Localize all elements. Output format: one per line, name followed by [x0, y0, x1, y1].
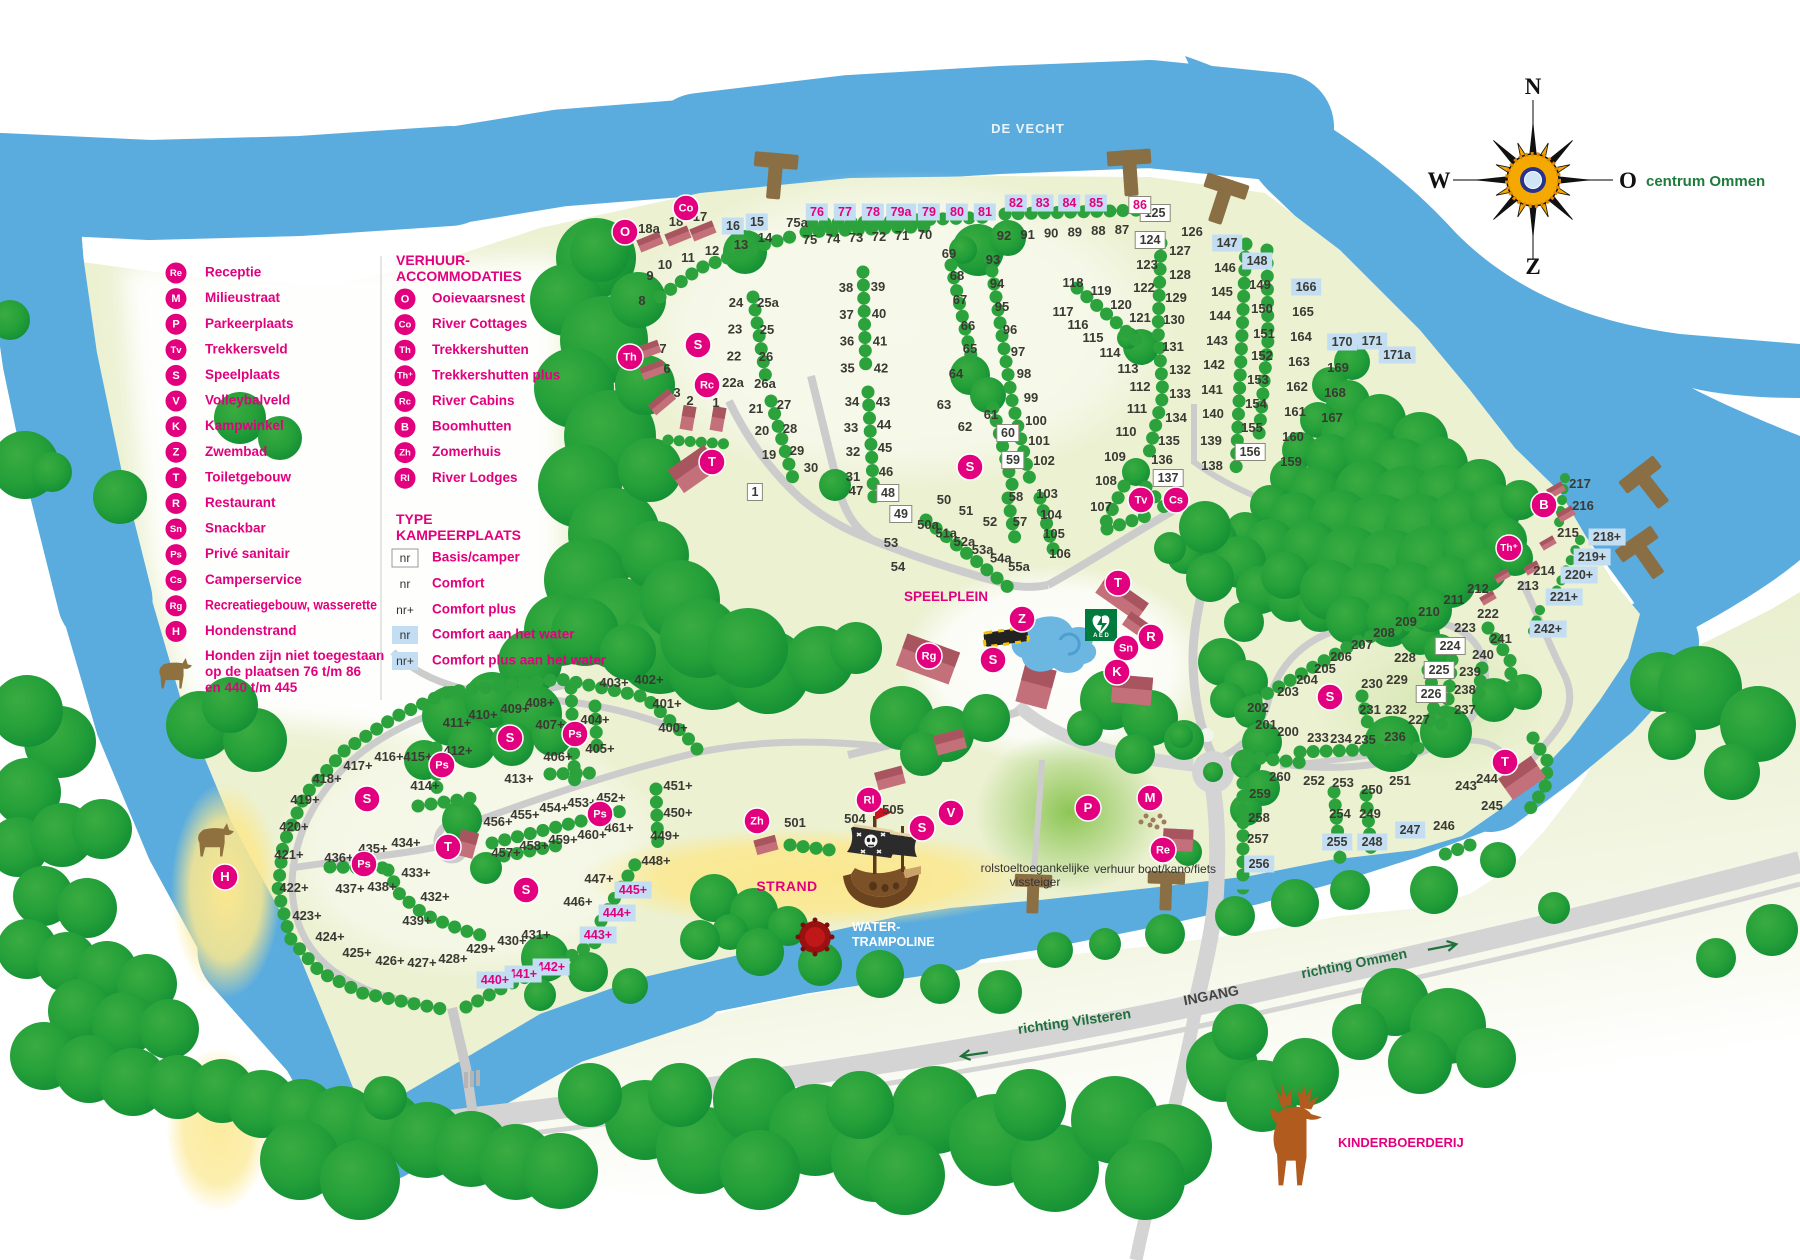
svg-text:237: 237 — [1454, 702, 1476, 717]
svg-text:434+: 434+ — [391, 835, 421, 850]
svg-text:106: 106 — [1049, 546, 1071, 561]
svg-text:247: 247 — [1400, 823, 1421, 837]
svg-text:249: 249 — [1359, 806, 1381, 821]
svg-text:en 440 t/m 445: en 440 t/m 445 — [205, 680, 298, 695]
svg-text:Snackbar: Snackbar — [205, 521, 267, 536]
svg-text:H: H — [220, 869, 229, 884]
svg-text:22a: 22a — [722, 375, 744, 390]
svg-text:Rc: Rc — [399, 396, 411, 407]
svg-text:79a: 79a — [891, 205, 913, 219]
svg-text:238: 238 — [1454, 682, 1476, 697]
svg-text:23: 23 — [728, 322, 742, 337]
svg-text:200: 200 — [1277, 724, 1299, 739]
svg-text:254: 254 — [1329, 806, 1351, 821]
svg-text:440+: 440+ — [481, 973, 509, 987]
svg-text:Z: Z — [1525, 254, 1540, 279]
svg-text:121: 121 — [1129, 310, 1151, 325]
svg-text:241: 241 — [1490, 631, 1512, 646]
svg-text:421+: 421+ — [274, 847, 304, 862]
svg-text:218+: 218+ — [1593, 530, 1621, 544]
svg-text:228: 228 — [1394, 650, 1416, 665]
svg-text:Parkeerplaats: Parkeerplaats — [205, 316, 294, 331]
svg-text:Restaurant: Restaurant — [205, 495, 276, 510]
svg-text:235: 235 — [1354, 732, 1376, 747]
svg-text:59: 59 — [1006, 453, 1020, 467]
svg-text:118: 118 — [1063, 275, 1084, 290]
svg-text:12: 12 — [705, 243, 719, 258]
svg-text:154: 154 — [1245, 396, 1267, 411]
svg-text:10: 10 — [658, 257, 672, 272]
svg-text:420+: 420+ — [279, 819, 309, 834]
svg-text:op de plaatsen 76 t/m 86: op de plaatsen 76 t/m 86 — [205, 664, 362, 679]
svg-text:252: 252 — [1303, 773, 1325, 788]
svg-text:S: S — [1326, 689, 1335, 704]
svg-text:Tv: Tv — [1135, 494, 1149, 506]
svg-text:M: M — [171, 293, 180, 305]
svg-text:Th: Th — [623, 351, 637, 363]
svg-text:82: 82 — [1009, 196, 1023, 210]
svg-text:68: 68 — [950, 268, 964, 283]
svg-text:216: 216 — [1572, 498, 1594, 513]
svg-text:403+: 403+ — [599, 675, 629, 690]
svg-text:58: 58 — [1009, 489, 1023, 504]
svg-text:Speelplaats: Speelplaats — [205, 367, 280, 382]
svg-text:126: 126 — [1181, 224, 1203, 239]
svg-text:18a: 18a — [638, 221, 660, 236]
svg-text:98: 98 — [1017, 366, 1031, 381]
svg-text:O: O — [401, 293, 410, 305]
svg-text:449+: 449+ — [650, 828, 680, 843]
svg-text:K: K — [172, 421, 180, 433]
svg-text:220+: 220+ — [1565, 568, 1593, 582]
svg-text:Toiletgebouw: Toiletgebouw — [205, 469, 291, 484]
svg-text:202: 202 — [1247, 700, 1269, 715]
svg-text:41: 41 — [873, 333, 887, 348]
svg-text:65: 65 — [963, 341, 977, 356]
svg-text:224: 224 — [1440, 639, 1461, 653]
svg-text:Volleybalveld: Volleybalveld — [205, 393, 290, 408]
svg-text:229: 229 — [1386, 672, 1408, 687]
svg-text:171a: 171a — [1383, 348, 1412, 362]
svg-text:Tv: Tv — [170, 345, 182, 356]
svg-text:Hondenstrand: Hondenstrand — [205, 623, 297, 638]
svg-text:Zh: Zh — [399, 448, 411, 459]
svg-text:STRAND: STRAND — [756, 878, 817, 894]
svg-text:209: 209 — [1395, 614, 1417, 629]
svg-text:91: 91 — [1020, 227, 1034, 242]
svg-text:84: 84 — [1062, 196, 1076, 210]
svg-text:219+: 219+ — [1578, 550, 1606, 564]
svg-text:122: 122 — [1133, 280, 1155, 295]
svg-text:64: 64 — [949, 366, 964, 381]
svg-text:215: 215 — [1557, 525, 1579, 540]
svg-text:505: 505 — [882, 802, 904, 817]
svg-text:Boomhutten: Boomhutten — [432, 419, 511, 434]
svg-text:25: 25 — [760, 322, 774, 337]
svg-text:89: 89 — [1068, 224, 1082, 239]
svg-text:109: 109 — [1104, 449, 1126, 464]
svg-text:27: 27 — [777, 397, 791, 412]
svg-text:244: 244 — [1476, 771, 1498, 786]
svg-text:425+: 425+ — [342, 945, 372, 960]
svg-text:140: 140 — [1202, 406, 1224, 421]
svg-text:458+: 458+ — [519, 838, 549, 853]
svg-text:13: 13 — [734, 237, 748, 252]
svg-text:136: 136 — [1151, 452, 1173, 467]
svg-text:15: 15 — [750, 215, 764, 229]
svg-text:129: 129 — [1165, 290, 1187, 305]
svg-text:161: 161 — [1284, 404, 1306, 419]
svg-text:61: 61 — [984, 407, 998, 422]
svg-text:246: 246 — [1433, 818, 1455, 833]
svg-text:115: 115 — [1083, 330, 1104, 345]
svg-text:Re: Re — [170, 268, 182, 279]
svg-text:416+: 416+ — [374, 749, 404, 764]
svg-text:168: 168 — [1324, 385, 1346, 400]
svg-text:152: 152 — [1251, 348, 1273, 363]
svg-text:166: 166 — [1296, 280, 1317, 294]
svg-text:Ps: Ps — [435, 759, 448, 771]
svg-text:400+: 400+ — [658, 720, 688, 735]
svg-text:150: 150 — [1251, 301, 1273, 316]
svg-text:101: 101 — [1028, 433, 1050, 448]
svg-text:159: 159 — [1280, 454, 1302, 469]
svg-text:47: 47 — [849, 483, 863, 498]
svg-text:81: 81 — [978, 205, 992, 219]
svg-text:S: S — [506, 730, 515, 745]
svg-text:Re: Re — [1156, 844, 1170, 856]
svg-text:97: 97 — [1011, 344, 1025, 359]
svg-text:Receptie: Receptie — [205, 265, 262, 280]
svg-text:432+: 432+ — [420, 889, 450, 904]
svg-text:134: 134 — [1165, 410, 1187, 425]
svg-text:102: 102 — [1033, 453, 1055, 468]
svg-text:428+: 428+ — [438, 951, 468, 966]
svg-text:Honden zijn niet toegestaan: Honden zijn niet toegestaan — [205, 648, 384, 663]
svg-text:100: 100 — [1025, 413, 1047, 428]
svg-text:3: 3 — [673, 385, 680, 400]
svg-text:19: 19 — [762, 447, 776, 462]
svg-text:K: K — [1112, 664, 1122, 679]
svg-text:Co: Co — [679, 202, 694, 214]
svg-text:201: 201 — [1255, 717, 1277, 732]
svg-text:431+: 431+ — [521, 927, 551, 942]
svg-text:203: 203 — [1277, 684, 1299, 699]
svg-text:34: 34 — [845, 394, 860, 409]
svg-text:231: 231 — [1359, 702, 1381, 717]
svg-text:90: 90 — [1044, 226, 1058, 241]
svg-text:232: 232 — [1385, 702, 1407, 717]
svg-text:230: 230 — [1361, 676, 1383, 691]
svg-text:44: 44 — [877, 417, 892, 432]
svg-text:S: S — [989, 652, 998, 667]
svg-text:165: 165 — [1292, 304, 1314, 319]
svg-text:26: 26 — [759, 349, 773, 364]
svg-text:204: 204 — [1296, 672, 1318, 687]
svg-text:448+: 448+ — [641, 853, 671, 868]
svg-text:88: 88 — [1091, 223, 1105, 238]
svg-text:Comfort aan het water: Comfort aan het water — [432, 627, 575, 642]
svg-text:nr+: nr+ — [396, 654, 414, 668]
svg-text:79: 79 — [922, 205, 936, 219]
svg-text:Th: Th — [399, 345, 411, 356]
svg-text:114: 114 — [1100, 345, 1122, 360]
svg-text:VERHUUR-: VERHUUR- — [396, 252, 470, 268]
svg-text:130: 130 — [1163, 312, 1185, 327]
svg-text:444+: 444+ — [603, 906, 631, 920]
svg-text:1: 1 — [752, 485, 759, 499]
svg-text:226: 226 — [1421, 687, 1442, 701]
svg-text:46: 46 — [879, 464, 893, 479]
svg-text:85: 85 — [1089, 196, 1103, 210]
svg-text:Ps: Ps — [593, 808, 606, 820]
svg-text:451+: 451+ — [663, 778, 693, 793]
svg-text:P: P — [1084, 800, 1093, 815]
svg-text:245: 245 — [1481, 798, 1503, 813]
svg-text:77: 77 — [838, 205, 852, 219]
svg-text:R: R — [172, 498, 180, 510]
svg-text:240: 240 — [1472, 647, 1494, 662]
svg-text:67: 67 — [953, 292, 967, 307]
svg-text:54: 54 — [891, 559, 906, 574]
svg-text:N: N — [1525, 74, 1542, 99]
svg-text:Sn: Sn — [1119, 642, 1133, 654]
svg-text:Z: Z — [173, 447, 180, 459]
svg-text:447+: 447+ — [584, 871, 614, 886]
svg-text:251: 251 — [1389, 773, 1411, 788]
svg-text:73: 73 — [849, 230, 863, 245]
svg-text:33: 33 — [844, 420, 858, 435]
svg-text:KAMPEERPLAATS: KAMPEERPLAATS — [396, 527, 521, 543]
svg-text:ACCOMMODATIES: ACCOMMODATIES — [396, 268, 522, 284]
svg-text:Recreatiegebouw, wasserette: Recreatiegebouw, wasserette — [205, 597, 377, 612]
svg-text:92: 92 — [997, 228, 1011, 243]
svg-text:76: 76 — [810, 205, 824, 219]
svg-text:93: 93 — [986, 252, 1000, 267]
svg-text:30: 30 — [804, 460, 818, 475]
svg-text:95: 95 — [995, 299, 1009, 314]
svg-text:Rl: Rl — [864, 794, 875, 806]
svg-text:75: 75 — [803, 232, 817, 247]
svg-text:Comfort plus: Comfort plus — [432, 602, 516, 617]
svg-text:rolstoeltoegankelijke: rolstoeltoegankelijke — [981, 861, 1090, 875]
svg-text:50: 50 — [937, 492, 951, 507]
svg-text:7: 7 — [659, 341, 666, 356]
svg-text:72: 72 — [872, 229, 886, 244]
svg-text:407+: 407+ — [535, 717, 565, 732]
svg-text:426+: 426+ — [375, 953, 405, 968]
svg-text:52: 52 — [983, 514, 997, 529]
svg-text:147: 147 — [1217, 236, 1238, 250]
svg-text:T: T — [444, 839, 452, 854]
svg-text:Zh: Zh — [750, 815, 764, 827]
svg-text:O: O — [620, 224, 630, 239]
svg-text:74: 74 — [826, 231, 841, 246]
svg-text:504: 504 — [844, 811, 866, 826]
svg-text:139: 139 — [1200, 433, 1222, 448]
svg-text:155: 155 — [1241, 420, 1263, 435]
svg-text:O: O — [1619, 168, 1637, 193]
svg-text:253: 253 — [1332, 775, 1354, 790]
svg-text:vissteiger: vissteiger — [1010, 875, 1061, 889]
svg-text:P: P — [172, 319, 179, 331]
svg-text:Basis/camper: Basis/camper — [432, 550, 521, 565]
svg-text:433+: 433+ — [401, 865, 431, 880]
svg-text:257: 257 — [1247, 831, 1269, 846]
svg-text:258: 258 — [1248, 810, 1270, 825]
svg-text:Milieustraat: Milieustraat — [205, 290, 281, 305]
svg-text:1: 1 — [712, 395, 719, 410]
svg-text:211: 211 — [1444, 592, 1465, 607]
svg-text:419+: 419+ — [290, 792, 320, 807]
svg-text:48: 48 — [881, 486, 895, 500]
svg-text:22: 22 — [727, 348, 741, 363]
svg-text:Trekkersveld: Trekkersveld — [205, 341, 288, 356]
svg-text:B: B — [401, 421, 409, 433]
svg-text:Rc: Rc — [700, 379, 714, 391]
svg-text:V: V — [172, 395, 180, 407]
svg-text:63: 63 — [937, 397, 951, 412]
svg-text:River Cabins: River Cabins — [432, 393, 515, 408]
svg-text:16: 16 — [726, 219, 740, 233]
svg-text:62: 62 — [958, 419, 972, 434]
svg-text:S: S — [966, 459, 975, 474]
svg-text:Comfort: Comfort — [432, 576, 485, 591]
svg-text:408+: 408+ — [525, 695, 555, 710]
svg-text:141: 141 — [1201, 382, 1223, 397]
svg-text:T: T — [1501, 754, 1509, 769]
svg-text:123: 123 — [1136, 257, 1158, 272]
svg-text:T: T — [708, 454, 716, 469]
svg-text:Trekkershutten plus: Trekkershutten plus — [432, 367, 560, 382]
svg-text:239: 239 — [1459, 664, 1481, 679]
svg-text:427+: 427+ — [407, 955, 437, 970]
svg-text:28: 28 — [783, 421, 797, 436]
svg-text:Ps: Ps — [568, 728, 581, 740]
svg-text:9: 9 — [646, 268, 653, 283]
svg-text:153: 153 — [1247, 372, 1269, 387]
svg-text:417+: 417+ — [343, 758, 373, 773]
svg-text:170: 170 — [1332, 335, 1353, 349]
svg-text:T: T — [1114, 575, 1122, 590]
svg-text:259: 259 — [1249, 786, 1271, 801]
svg-text:H: H — [172, 626, 180, 638]
svg-text:225: 225 — [1429, 663, 1450, 677]
svg-text:57: 57 — [1013, 514, 1027, 529]
svg-text:145: 145 — [1211, 284, 1233, 299]
svg-text:111: 111 — [1127, 401, 1147, 416]
svg-text:11: 11 — [681, 250, 695, 265]
svg-text:146: 146 — [1214, 260, 1236, 275]
svg-text:nr: nr — [400, 628, 411, 642]
svg-text:32: 32 — [846, 444, 860, 459]
svg-text:250: 250 — [1361, 782, 1383, 797]
svg-text:25a: 25a — [757, 295, 779, 310]
svg-text:454+: 454+ — [539, 800, 569, 815]
svg-text:36: 36 — [840, 334, 854, 349]
svg-text:26a: 26a — [754, 376, 776, 391]
svg-text:Ps: Ps — [357, 858, 370, 870]
svg-text:128: 128 — [1169, 267, 1191, 282]
svg-text:234: 234 — [1330, 731, 1352, 746]
svg-text:S: S — [172, 370, 179, 382]
svg-text:86: 86 — [1133, 198, 1147, 212]
svg-text:413+: 413+ — [504, 771, 534, 786]
svg-text:71: 71 — [895, 228, 909, 243]
svg-text:verhuur boot/kano/fiets: verhuur boot/kano/fiets — [1094, 862, 1216, 876]
svg-text:69: 69 — [942, 246, 956, 261]
svg-text:222: 222 — [1477, 606, 1499, 621]
svg-text:Rl: Rl — [400, 473, 410, 484]
svg-text:94: 94 — [990, 276, 1005, 291]
svg-text:6: 6 — [663, 361, 670, 376]
svg-text:255: 255 — [1327, 835, 1348, 849]
svg-text:River Lodges: River Lodges — [432, 470, 518, 485]
svg-text:45: 45 — [878, 440, 892, 455]
svg-text:138: 138 — [1201, 458, 1223, 473]
svg-text:M: M — [1145, 790, 1156, 805]
svg-text:TYPE: TYPE — [396, 511, 433, 527]
svg-text:236: 236 — [1384, 729, 1406, 744]
svg-text:Kampwinkel: Kampwinkel — [205, 418, 284, 433]
svg-text:14: 14 — [758, 230, 773, 245]
svg-text:142: 142 — [1203, 357, 1225, 372]
svg-text:centrum Ommen: centrum Ommen — [1646, 173, 1765, 190]
svg-text:233: 233 — [1307, 730, 1329, 745]
svg-text:160: 160 — [1282, 429, 1304, 444]
svg-text:248: 248 — [1362, 835, 1383, 849]
svg-text:164: 164 — [1290, 329, 1312, 344]
svg-text:105: 105 — [1043, 526, 1065, 541]
svg-text:410+: 410+ — [468, 707, 498, 722]
svg-text:Co: Co — [399, 320, 412, 331]
svg-text:KINDERBOERDERIJ: KINDERBOERDERIJ — [1338, 1135, 1464, 1150]
svg-text:Comfort plus aan het water: Comfort plus aan het water — [432, 653, 607, 668]
svg-text:459+: 459+ — [548, 832, 578, 847]
svg-text:424+: 424+ — [315, 929, 345, 944]
svg-text:221+: 221+ — [1550, 590, 1578, 604]
svg-text:38: 38 — [839, 280, 853, 295]
svg-text:R: R — [1146, 629, 1156, 644]
svg-text:Privé sanitair: Privé sanitair — [205, 546, 291, 561]
svg-text:438+: 438+ — [367, 879, 397, 894]
svg-text:Ps: Ps — [170, 550, 182, 561]
svg-text:112: 112 — [1130, 379, 1151, 394]
svg-text:210: 210 — [1418, 604, 1440, 619]
svg-text:A E D: A E D — [1093, 633, 1109, 639]
svg-text:243: 243 — [1455, 778, 1477, 793]
svg-text:107: 107 — [1090, 499, 1112, 514]
svg-text:443+: 443+ — [584, 928, 612, 942]
svg-text:29: 29 — [790, 443, 804, 458]
svg-text:Z: Z — [1018, 611, 1026, 626]
svg-text:83: 83 — [1036, 196, 1050, 210]
svg-text:39: 39 — [871, 279, 885, 294]
svg-text:423+: 423+ — [292, 908, 322, 923]
svg-text:96: 96 — [1003, 322, 1017, 337]
svg-text:110: 110 — [1116, 424, 1137, 439]
svg-text:143: 143 — [1206, 333, 1228, 348]
svg-text:208: 208 — [1373, 625, 1395, 640]
svg-text:402+: 402+ — [634, 672, 664, 687]
svg-text:104: 104 — [1040, 507, 1062, 522]
svg-text:Trekkershutten: Trekkershutten — [432, 342, 529, 357]
svg-text:49: 49 — [894, 507, 908, 521]
svg-text:169: 169 — [1327, 360, 1349, 375]
svg-text:55a: 55a — [1008, 559, 1030, 574]
svg-text:24: 24 — [729, 295, 744, 310]
svg-text:422+: 422+ — [279, 880, 309, 895]
